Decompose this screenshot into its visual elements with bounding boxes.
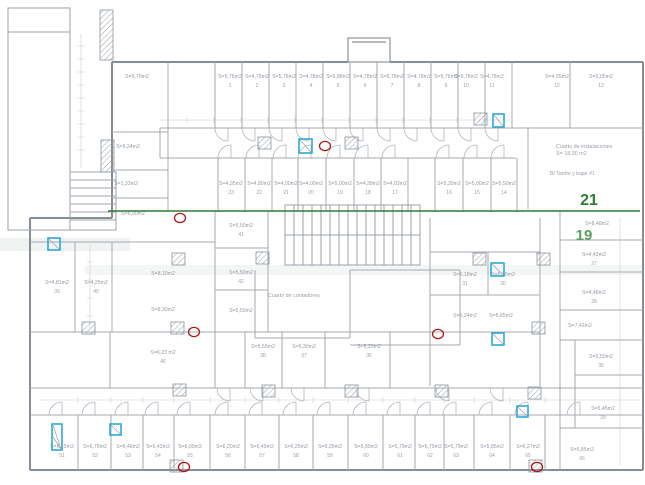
room-number: 60 bbox=[363, 453, 369, 459]
special-room-label: B/ Tarrito y bajar #1 bbox=[550, 171, 595, 177]
room-area-label: S=5,78m2 bbox=[454, 74, 478, 80]
room-number: 28 bbox=[591, 299, 597, 305]
room-area-label: S=8,10m2 bbox=[151, 271, 175, 277]
blue-square-marker bbox=[493, 114, 504, 127]
green-annotation-label: 21 bbox=[580, 192, 598, 209]
door-arc bbox=[377, 128, 390, 141]
room-area-label: S=5,78m2 bbox=[272, 74, 296, 80]
room-number: 23 bbox=[228, 190, 234, 196]
room-area-label: S=5,59m2 bbox=[251, 344, 275, 350]
door-arc bbox=[49, 402, 62, 415]
room-area-label: S=4,03m2 bbox=[383, 181, 407, 187]
door-arc bbox=[323, 128, 336, 141]
door-arc bbox=[417, 402, 430, 415]
room-number: 35 bbox=[598, 363, 604, 369]
room-area-label: S=4,78m2 bbox=[299, 74, 323, 80]
room-area-label: S=6,43m2 bbox=[146, 444, 170, 450]
room-area-label: S=5,80m2 bbox=[354, 444, 378, 450]
special-room-label: S= 18,30 m2 bbox=[556, 151, 587, 157]
pillar bbox=[532, 322, 545, 334]
room-area-label: S=4,00m2 bbox=[299, 181, 323, 187]
room-area-label: S=8,30m2 bbox=[151, 307, 175, 313]
room-area-label: S=5,50m2 bbox=[229, 308, 253, 314]
room-number: 12 bbox=[554, 83, 560, 89]
room-number: 14 bbox=[501, 190, 507, 196]
door-arc bbox=[249, 402, 262, 415]
pillar bbox=[258, 137, 271, 149]
room-area-label: S=6,23 m2 bbox=[150, 350, 175, 356]
pillar bbox=[262, 385, 275, 397]
door-arc bbox=[443, 402, 456, 415]
door-arc bbox=[567, 402, 580, 415]
room-number: 40 bbox=[93, 289, 99, 295]
room-area-label: S=4,78m2 bbox=[353, 74, 377, 80]
green-annotation-label: 19 bbox=[576, 227, 593, 244]
room-number: 16 bbox=[446, 190, 452, 196]
room-area-label: S=5,30m2 bbox=[437, 181, 461, 187]
room-number: 18 bbox=[365, 190, 371, 196]
room-number: 58 bbox=[293, 453, 299, 459]
room-area-label: S=5,85m2 bbox=[480, 444, 504, 450]
room-number: 64 bbox=[489, 453, 495, 459]
room-area-label: S=4,78m2 bbox=[407, 74, 431, 80]
door-arc bbox=[479, 402, 492, 415]
room-area-label: S=6,49m2 bbox=[250, 444, 274, 450]
room-number: 66 bbox=[579, 456, 585, 462]
room-number: 30 bbox=[500, 281, 506, 287]
room-area-label: S=5,78m2 bbox=[380, 74, 404, 80]
room-area-label: S=6,00m2 bbox=[121, 211, 145, 217]
room-area-label: S=5,30m2 bbox=[292, 344, 316, 350]
room-number: 54 bbox=[155, 453, 161, 459]
room-area-label: S=4,78m2 bbox=[480, 74, 504, 80]
roof-shaft bbox=[348, 38, 390, 62]
room-number: 39 bbox=[54, 289, 60, 295]
room-area-label: S=5,79m2 bbox=[444, 444, 468, 450]
room-number: 15 bbox=[474, 190, 480, 196]
blue-square-marker bbox=[299, 139, 312, 153]
room-area-label: S=9,70m2 bbox=[125, 74, 149, 80]
blue-square-marker bbox=[492, 333, 504, 345]
red-circle-marker bbox=[175, 213, 186, 222]
door-arc bbox=[283, 402, 296, 415]
room-number: 38 bbox=[260, 353, 266, 359]
room-number: 61 bbox=[397, 453, 403, 459]
pillar bbox=[172, 253, 185, 265]
door-arc bbox=[217, 388, 230, 401]
room-number: 6 bbox=[364, 83, 367, 89]
room-area-label: S=6,85m2 bbox=[570, 447, 594, 453]
door-arc bbox=[145, 402, 158, 415]
room-number: 8 bbox=[418, 83, 421, 89]
room-area-label: S=5,05m2 bbox=[589, 74, 613, 80]
room-number: 19 bbox=[337, 190, 343, 196]
pillar bbox=[473, 253, 486, 265]
room-number: 52 bbox=[92, 453, 98, 459]
room-area-label: S=4,35m2 bbox=[219, 181, 243, 187]
pillar bbox=[82, 322, 95, 334]
room-number: 41 bbox=[238, 232, 244, 238]
floor-plan-svg: S=9,70m2S=5,24m2S=1,33m2S=6,00m2S=8,10m2… bbox=[0, 0, 645, 485]
room-number: 59 bbox=[327, 453, 333, 459]
tower-stairs-icon bbox=[70, 172, 116, 230]
room-area-label: S=7,42m2 bbox=[568, 323, 592, 329]
room-number: 21 bbox=[283, 190, 289, 196]
room-area-label: S=4,80m2 bbox=[247, 181, 271, 187]
room-area-label: S=6,76m2 bbox=[83, 444, 107, 450]
red-circle-marker bbox=[433, 329, 444, 338]
pillar bbox=[474, 113, 487, 125]
room-number: 11 bbox=[489, 83, 494, 89]
room-number: 9 bbox=[445, 83, 448, 89]
room-number: 1 bbox=[229, 83, 232, 89]
door-arc bbox=[491, 145, 504, 158]
special-texts: Cuarto de instalacionesS= 18,30 m2B/ Tar… bbox=[268, 144, 613, 299]
door-arc bbox=[382, 145, 395, 158]
floor-plan: S=9,70m2S=5,24m2S=1,33m2S=6,00m2S=8,10m2… bbox=[0, 0, 645, 485]
room-area-label: S=4,55m2 bbox=[545, 74, 569, 80]
room-area-label: S=6,25m2 bbox=[318, 444, 342, 450]
pillar bbox=[345, 137, 358, 149]
door-arc bbox=[115, 402, 128, 415]
door-arc bbox=[458, 128, 471, 141]
special-room-label: Cuarto de instalaciones bbox=[556, 144, 613, 150]
door-arc bbox=[82, 402, 95, 415]
room-number: 22 bbox=[256, 190, 262, 196]
room-number: 37 bbox=[301, 353, 307, 359]
room-area-label: S=5,00m2 bbox=[465, 181, 489, 187]
room-area-label: S=5,76m2 bbox=[218, 74, 242, 80]
room-number: 36 bbox=[366, 353, 372, 359]
door-arc bbox=[317, 402, 330, 415]
room-number: 4 bbox=[310, 83, 313, 89]
door-arc bbox=[218, 145, 231, 158]
room-number: 3 bbox=[283, 83, 286, 89]
special-room-label: Cuarto de contadores bbox=[268, 293, 320, 299]
room-area-label: S=4,43m2 bbox=[582, 252, 606, 258]
room-number: 31 bbox=[462, 281, 468, 287]
room-area-label: S=6,25m2 bbox=[284, 444, 308, 450]
room-area-label: S=5,50m2 bbox=[229, 270, 253, 276]
room-area-label: S=5,24m2 bbox=[116, 144, 140, 150]
room-number: 46 bbox=[160, 359, 166, 365]
door-arc bbox=[242, 128, 255, 141]
room-number: 42 bbox=[238, 279, 244, 285]
pillar bbox=[537, 253, 550, 265]
blue-markers bbox=[48, 114, 528, 450]
room-area-label: S=6,00m2 bbox=[178, 444, 202, 450]
room-area-label: S=5,00m2 bbox=[328, 181, 352, 187]
room-area-label: S=6,27m2 bbox=[516, 444, 540, 450]
room-area-label: S=1,33m2 bbox=[114, 181, 138, 187]
door-arc bbox=[298, 145, 311, 158]
room-area-label: S=5,50m2 bbox=[589, 354, 613, 360]
pillar bbox=[256, 252, 269, 264]
door-arc bbox=[387, 402, 400, 415]
door-arc bbox=[431, 128, 444, 141]
room-number: 62 bbox=[427, 453, 433, 459]
room-area-label: S=4,48m2 bbox=[582, 290, 606, 296]
room-number: 65 bbox=[525, 453, 531, 459]
red-circle-marker bbox=[320, 141, 331, 150]
room-number: 27 bbox=[591, 261, 597, 267]
room-number: 10 bbox=[463, 83, 469, 89]
room-area-label: S=6,20m2 bbox=[216, 444, 240, 450]
door-arc bbox=[485, 128, 498, 141]
door-arc bbox=[215, 128, 228, 141]
room-area-label: S=6,48m2 bbox=[116, 444, 140, 450]
room-area-label: S=4,39m2 bbox=[356, 181, 380, 187]
pillar bbox=[171, 322, 184, 334]
door-arc bbox=[327, 145, 340, 158]
room-number: 51 bbox=[59, 453, 65, 459]
room-number: 63 bbox=[453, 453, 459, 459]
room-area-label: S=4,00m2 bbox=[274, 181, 298, 187]
door-arc bbox=[177, 402, 190, 415]
room-number: 20 bbox=[308, 190, 314, 196]
room-area-label: S=5,50m2 bbox=[492, 181, 516, 187]
room-area-label: S=5,18m2 bbox=[453, 272, 477, 278]
room-number: 55 bbox=[187, 453, 193, 459]
door-arc bbox=[215, 402, 228, 415]
door-arc bbox=[464, 145, 477, 158]
door-arc bbox=[250, 388, 263, 401]
room-number: 29 bbox=[600, 415, 606, 421]
room-area-label: S=5,65m2 bbox=[489, 313, 513, 319]
room-number: 17 bbox=[392, 190, 398, 196]
room-number: 5 bbox=[337, 83, 340, 89]
room-number: 2 bbox=[256, 83, 259, 89]
blue-square-marker bbox=[110, 424, 121, 435]
pillar bbox=[435, 385, 448, 397]
room-number: 53 bbox=[125, 453, 131, 459]
room-area-label: S=5,50m2 bbox=[229, 223, 253, 229]
door-arc bbox=[404, 128, 417, 141]
door-arc bbox=[273, 145, 286, 158]
door-arc bbox=[490, 388, 503, 401]
room-area-label: S=5,79m2 bbox=[388, 444, 412, 450]
room-number: 13 bbox=[598, 83, 604, 89]
room-area-label: S=5,45m2 bbox=[591, 406, 615, 412]
room-area-label: S=5,20m2 bbox=[357, 344, 381, 350]
room-area-label: S=5,30m2 bbox=[491, 272, 515, 278]
room-area-label: S=4,78m2 bbox=[245, 74, 269, 80]
door-arc bbox=[436, 145, 449, 158]
door-arc bbox=[291, 388, 304, 401]
room-area-label: S=5,88m2 bbox=[326, 74, 350, 80]
pillar bbox=[345, 385, 358, 397]
room-area-label: S=6,79m2 bbox=[418, 444, 442, 450]
pillar bbox=[528, 387, 541, 399]
room-number: 57 bbox=[259, 453, 265, 459]
stairs-icon bbox=[285, 205, 420, 265]
room-area-label: S=4,25m2 bbox=[84, 280, 108, 286]
room-number: 7 bbox=[391, 83, 394, 89]
door-arc bbox=[353, 402, 366, 415]
room-area-label: S=6,24m2 bbox=[453, 313, 477, 319]
room-area-label: S=4,81m2 bbox=[45, 280, 69, 286]
room-number: 56 bbox=[225, 453, 231, 459]
door-arc bbox=[246, 145, 259, 158]
pillar bbox=[173, 384, 186, 396]
